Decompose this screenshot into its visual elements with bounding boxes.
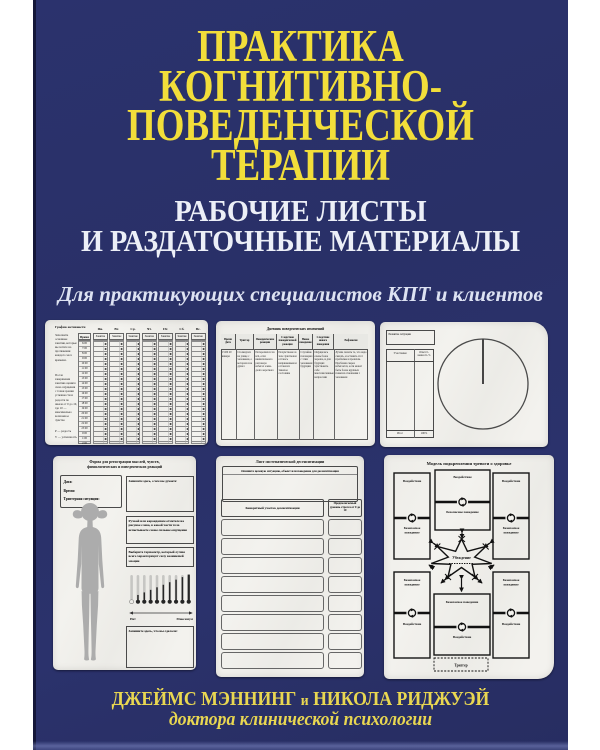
svg-text:Воздействие: Воздействие bbox=[502, 479, 521, 483]
svg-text:Безопасное поведение: Безопасное поведение bbox=[446, 510, 479, 514]
svg-text:Модель подкрепления тревоги о: Модель подкрепления тревоги о здоровье bbox=[427, 461, 512, 466]
svg-text:Безопасное поведение: Безопасное поведение bbox=[446, 600, 479, 604]
svg-text:поведение: поведение bbox=[503, 531, 519, 535]
svg-text:поведение: поведение bbox=[503, 583, 519, 587]
svg-text:Воздействие: Воздействие bbox=[453, 635, 472, 639]
svg-text:Воздействие: Воздействие bbox=[403, 622, 422, 626]
svg-text:Безопасное: Безопасное bbox=[404, 526, 421, 530]
svg-text:Безопасное: Безопасное bbox=[503, 578, 520, 582]
svg-text:Триггер: Триггер bbox=[454, 664, 467, 668]
svg-text:Убеждение: Убеждение bbox=[452, 556, 471, 560]
svg-text:Воздействие: Воздействие bbox=[453, 475, 472, 479]
svg-text:поведение: поведение bbox=[404, 583, 420, 587]
svg-text:Воздействие: Воздействие bbox=[403, 479, 422, 483]
svg-text:поведение: поведение bbox=[404, 531, 420, 535]
svg-text:Безопасное: Безопасное bbox=[404, 578, 421, 582]
svg-text:Безопасное: Безопасное bbox=[503, 526, 520, 530]
svg-text:Воздействие: Воздействие bbox=[502, 622, 521, 626]
